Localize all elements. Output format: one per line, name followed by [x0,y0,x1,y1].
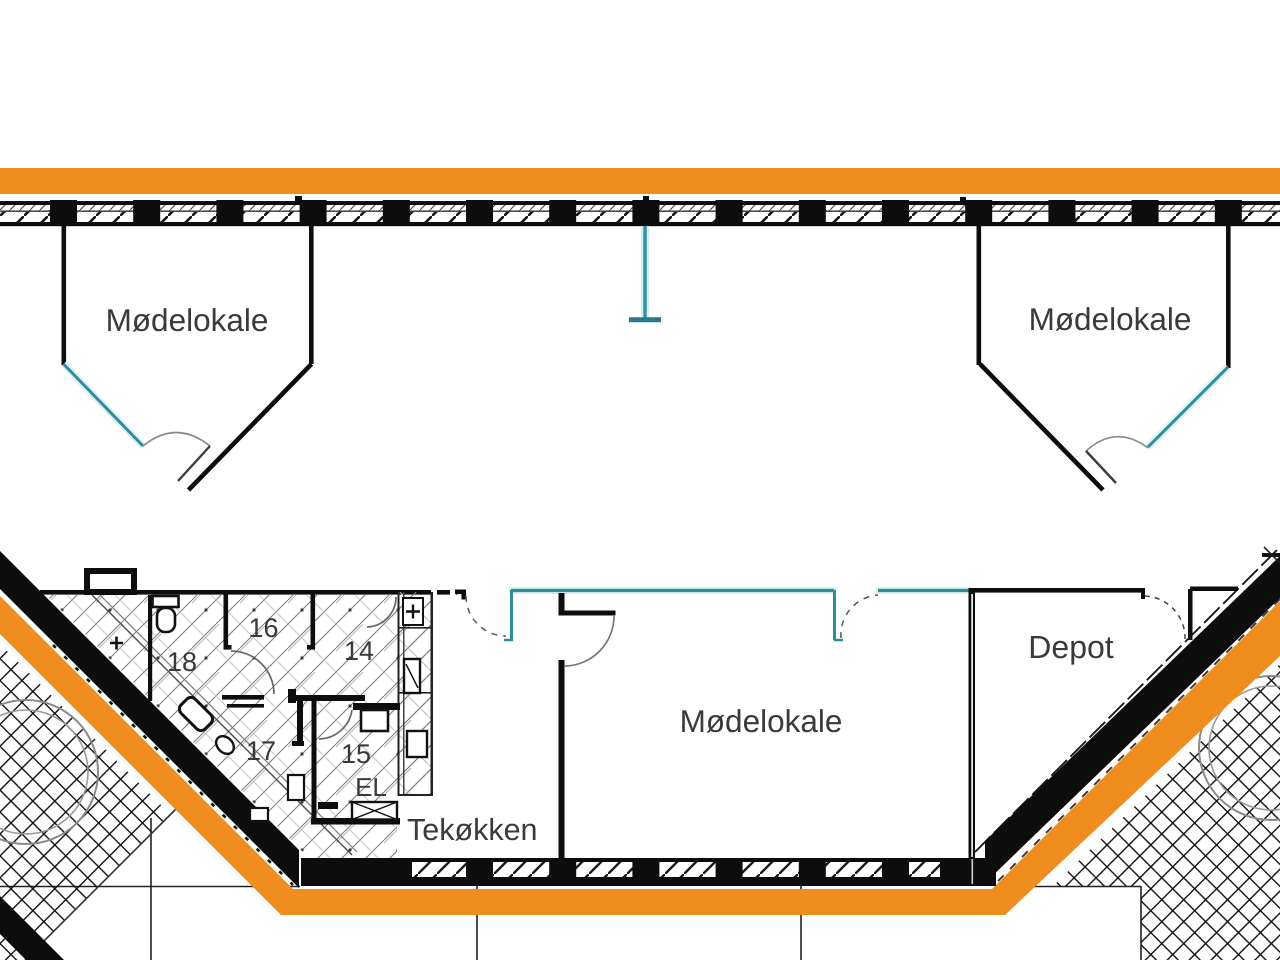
svg-text:Mødelokale: Mødelokale [106,302,269,338]
svg-text:Mødelokale: Mødelokale [680,703,843,739]
svg-text:17: 17 [246,736,276,766]
svg-text:16: 16 [248,613,278,643]
svg-text:Depot: Depot [1028,629,1114,665]
svg-text:15: 15 [341,739,371,769]
svg-text:18: 18 [167,647,197,677]
svg-text:EL: EL [355,772,387,802]
svg-text:Tekøkken: Tekøkken [407,813,538,847]
svg-text:Mødelokale: Mødelokale [1029,301,1192,337]
svg-text:14: 14 [344,636,374,666]
